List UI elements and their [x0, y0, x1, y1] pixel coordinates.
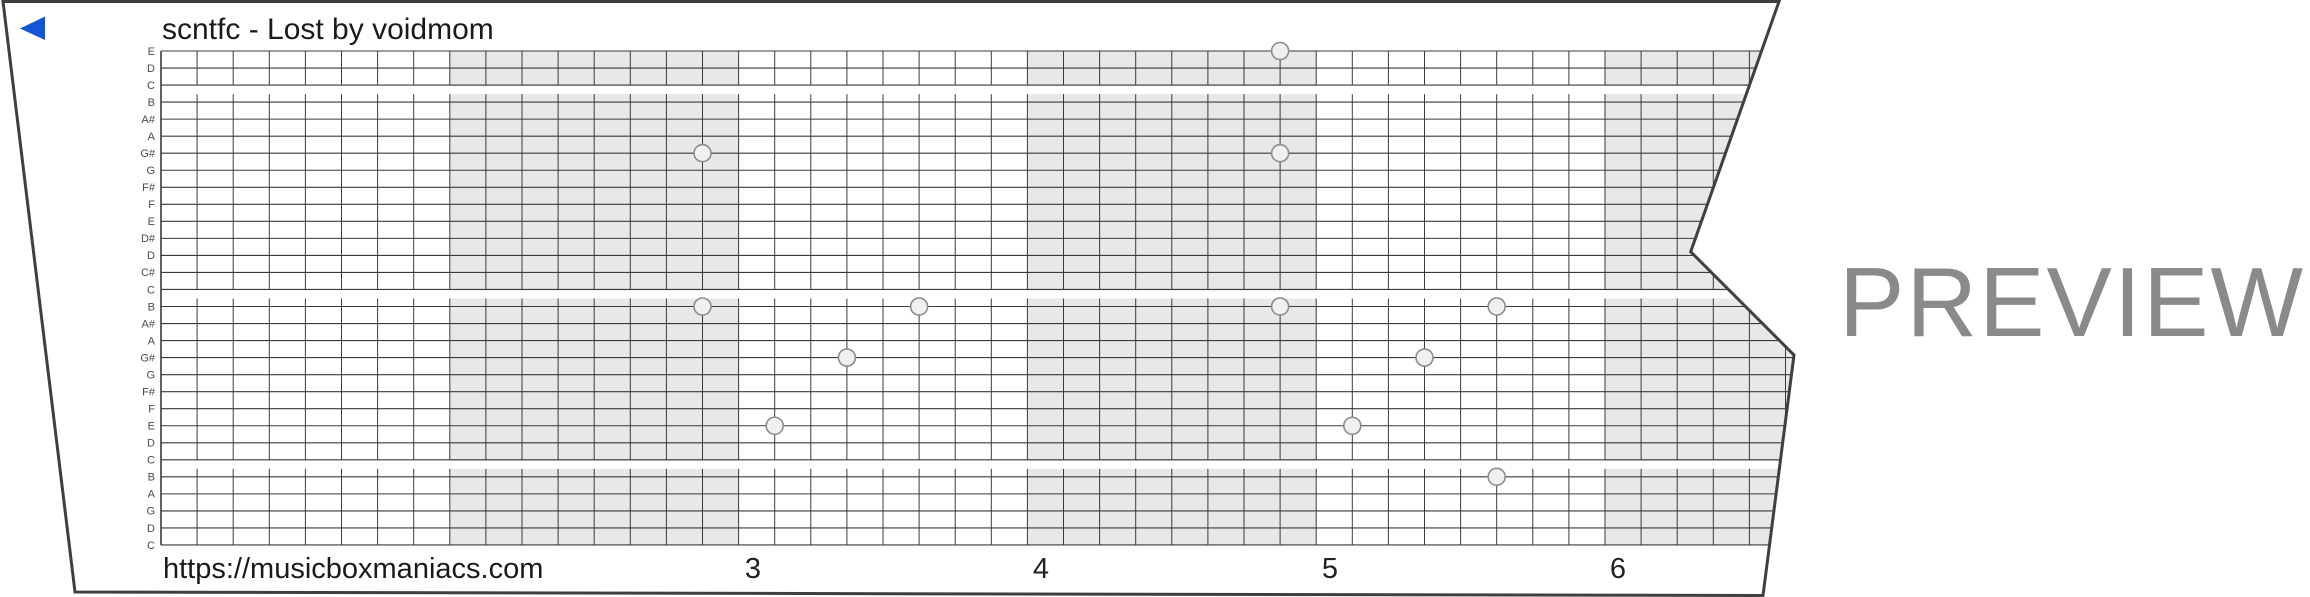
note-hole: [766, 417, 783, 434]
note-label: G#: [140, 148, 156, 160]
note-label: A#: [142, 114, 156, 126]
note-label: E: [148, 216, 155, 228]
note-label: A: [148, 489, 156, 501]
note-label: A#: [142, 318, 156, 330]
preview-watermark: PREVIEW: [1839, 247, 2305, 357]
note-label: G: [146, 165, 155, 177]
note-label: D: [147, 523, 155, 535]
note-label: A: [148, 335, 156, 347]
song-title: scntfc - Lost by voidmom: [162, 13, 494, 46]
note-label: C: [147, 540, 155, 552]
note-label: B: [148, 301, 155, 313]
note-hole: [1272, 145, 1289, 162]
note-hole: [1344, 417, 1361, 434]
note-hole: [694, 298, 711, 315]
note-hole: [1416, 349, 1433, 366]
note-hole: [694, 145, 711, 162]
note-label: G: [146, 506, 155, 518]
note-label: C: [147, 284, 155, 296]
music-box-preview: scntfc - Lost by voidmom EDCBA#AG#GF#FED…: [0, 0, 2310, 597]
note-label: G: [146, 369, 155, 381]
note-label: C#: [141, 267, 156, 279]
note-label: C: [147, 80, 155, 92]
note-hole: [1272, 43, 1289, 60]
note-hole: [1488, 468, 1505, 485]
measure-number: 6: [1610, 553, 1626, 585]
note-label: F#: [142, 386, 156, 398]
note-label: E: [148, 46, 155, 58]
octave-separator: [161, 461, 1790, 469]
note-label: D#: [141, 233, 156, 245]
note-label: F: [148, 199, 155, 211]
note-label: B: [148, 472, 155, 484]
octave-separator: [161, 291, 1790, 299]
note-label: E: [148, 421, 155, 433]
note-label: G#: [140, 352, 156, 364]
note-label: D: [147, 438, 155, 450]
octave-separator: [161, 86, 1790, 94]
measure-number: 4: [1033, 553, 1049, 585]
note-hole: [1272, 298, 1289, 315]
note-label: F#: [142, 182, 156, 194]
note-label: B: [148, 97, 155, 109]
note-hole: [838, 349, 855, 366]
note-label: D: [147, 63, 155, 75]
note-hole: [1488, 298, 1505, 315]
note-label: A: [148, 131, 156, 143]
note-label: C: [147, 455, 155, 467]
note-label: D: [147, 250, 155, 262]
site-url: https://musicboxmaniacs.com: [163, 553, 543, 585]
note-hole: [911, 298, 928, 315]
measure-number: 5: [1322, 553, 1338, 585]
measure-number: 3: [745, 553, 761, 585]
preview-strip-canvas: scntfc - Lost by voidmom EDCBA#AG#GF#FED…: [0, 0, 2310, 597]
note-label: F: [148, 404, 155, 416]
